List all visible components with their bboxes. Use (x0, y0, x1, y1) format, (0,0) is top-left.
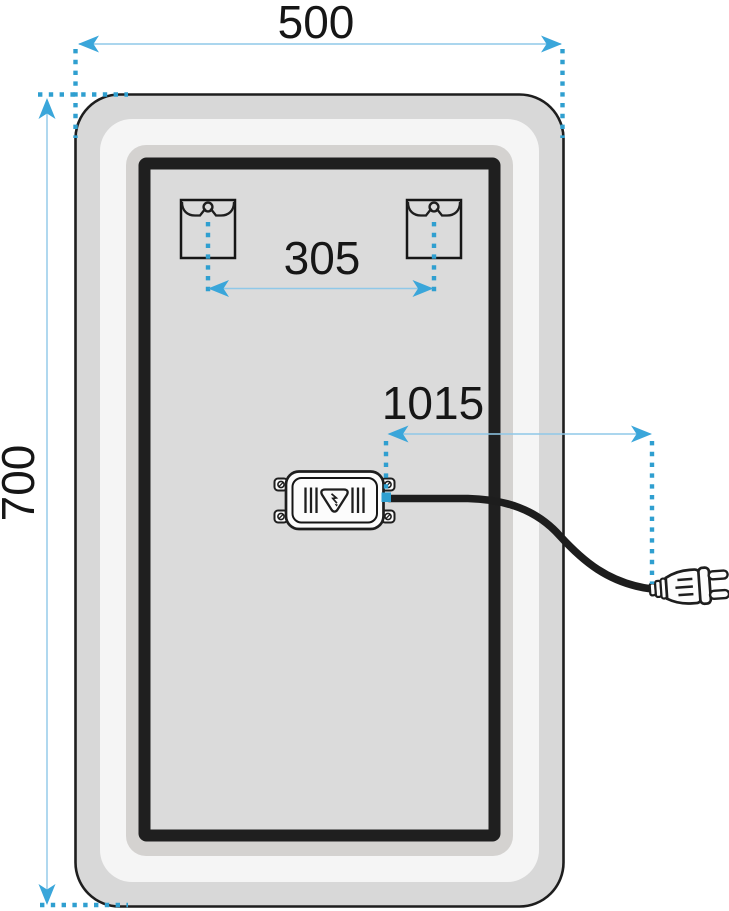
led-driver-box (275, 472, 395, 530)
dim-cable-length-label: 1015 (382, 377, 484, 429)
plug-prong-bottom (710, 590, 729, 599)
plug-prong-top (708, 570, 728, 579)
dim-width-label: 500 (278, 0, 355, 48)
dim-height-label: 700 (0, 445, 44, 522)
cable-exit-marker (382, 493, 392, 503)
power-plug (649, 566, 729, 607)
mirror-dimension-diagram: 500 700 305 1015 (0, 0, 729, 911)
diagram-canvas: 500 700 305 1015 (0, 0, 729, 911)
dim-bracket-spacing-label: 305 (284, 232, 361, 284)
